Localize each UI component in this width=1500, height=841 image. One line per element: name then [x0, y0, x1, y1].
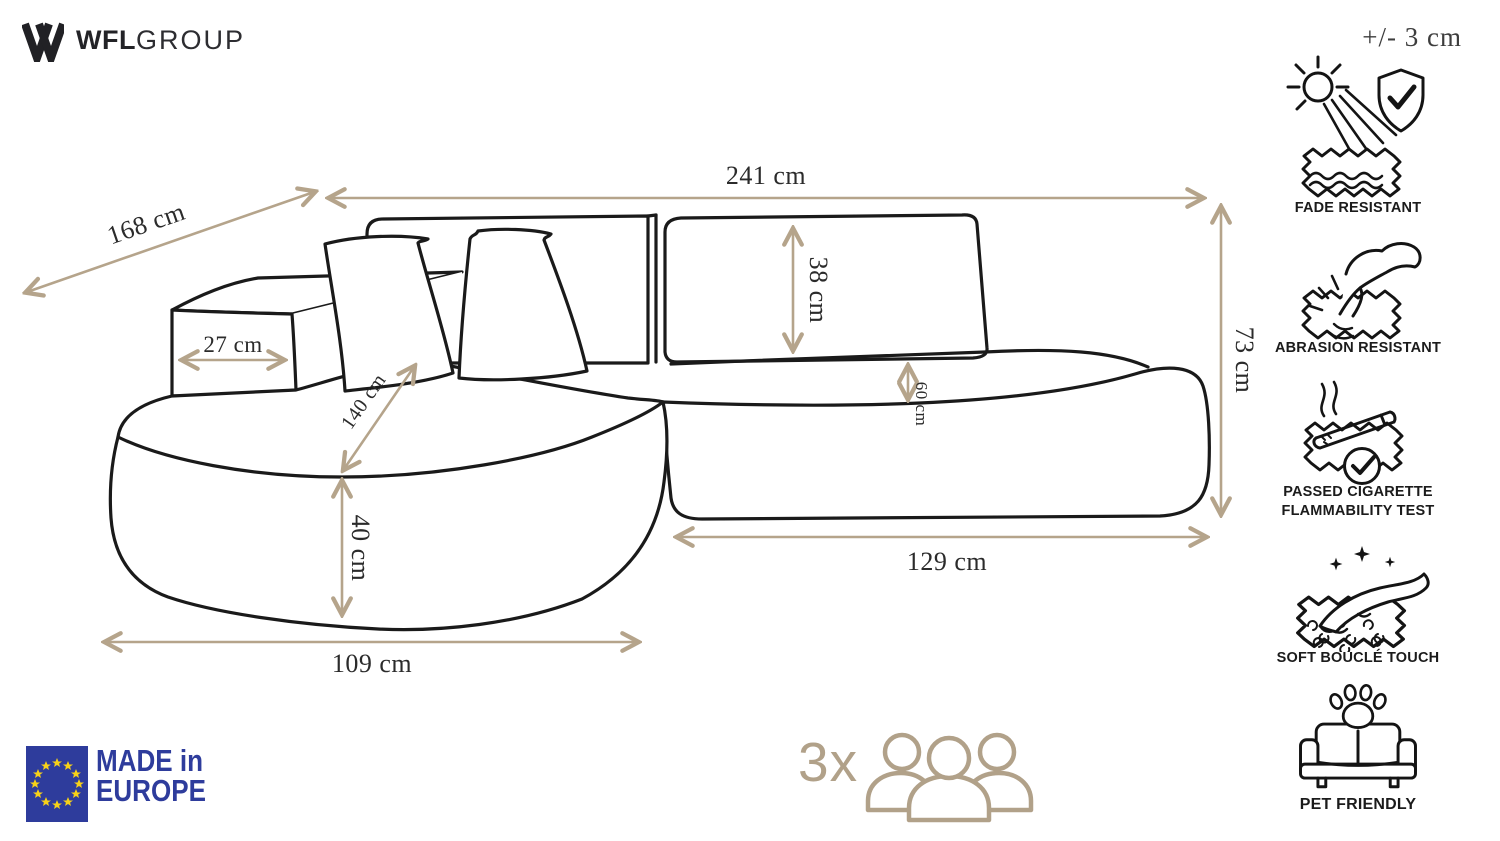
made-in-europe-badge: MADE in EUROPE	[26, 746, 227, 822]
feature-soft-boucle-touch: SOFT BOUCLÉ TOUCH	[1284, 538, 1432, 657]
dim-chaise-width: 109 cm	[332, 649, 412, 678]
made-in-line2: EUROPE	[96, 776, 206, 806]
feature-label: SOFT BOUCLÉ TOUCH	[1248, 650, 1468, 666]
backrest-split-top	[648, 215, 656, 216]
dim-seat-height: 40 cm	[346, 515, 375, 582]
tolerance-note: +/- 3 cm	[1362, 22, 1462, 53]
dim-total-height: 73 cm	[1230, 327, 1259, 394]
dim-seat-depth: 60 cm	[912, 382, 931, 427]
dim-total-width: 241 cm	[726, 161, 806, 190]
feature-pet-friendly: PET FRIENDLY	[1288, 684, 1428, 797]
seat-right-body	[663, 368, 1209, 519]
feature-label-line2: FLAMMABILITY TEST	[1248, 503, 1468, 519]
feature-label: ABRASION RESISTANT	[1248, 340, 1468, 356]
feature-abrasion-resistant: ABRASION RESISTANT	[1288, 236, 1428, 347]
sofa-line-drawing: 241 cm 168 cm 27 cm 140 cm 40 cm 38 cm 6…	[0, 0, 1270, 841]
dim-backrest-height: 38 cm	[804, 257, 833, 324]
cigarette-fabric-check-icon	[1288, 376, 1428, 486]
dim-diagonal-depth: 168 cm	[103, 197, 188, 251]
dim-armrest-width: 27 cm	[203, 332, 262, 357]
feature-label: PET FRIENDLY	[1248, 796, 1468, 814]
eu-flag-icon	[26, 746, 88, 822]
sofa-outline	[110, 215, 1209, 630]
feature-fade-resistant: FADE RESISTANT	[1282, 54, 1434, 205]
capacity-count: 3x	[798, 730, 858, 794]
three-people-icon	[862, 722, 1037, 826]
made-in-europe-text: MADE in EUROPE	[96, 746, 206, 822]
dim-seat-width: 129 cm	[907, 547, 987, 576]
sofa-dimension-diagram: WFLGROUP +/- 3 cm	[0, 0, 1500, 841]
hand-boucle-fabric-icon	[1284, 538, 1432, 652]
hand-scratch-fabric-icon	[1288, 236, 1428, 342]
sofa-paw-icon	[1288, 684, 1428, 792]
chaise-body	[110, 361, 667, 630]
sun-shield-fabric-icon	[1282, 54, 1434, 200]
feature-label: FADE RESISTANT	[1248, 200, 1468, 216]
made-in-line1: MADE in	[96, 746, 206, 776]
feature-label-line1: PASSED CIGARETTE	[1248, 484, 1468, 500]
feature-cigarette-test: PASSED CIGARETTE FLAMMABILITY TEST	[1288, 376, 1428, 491]
